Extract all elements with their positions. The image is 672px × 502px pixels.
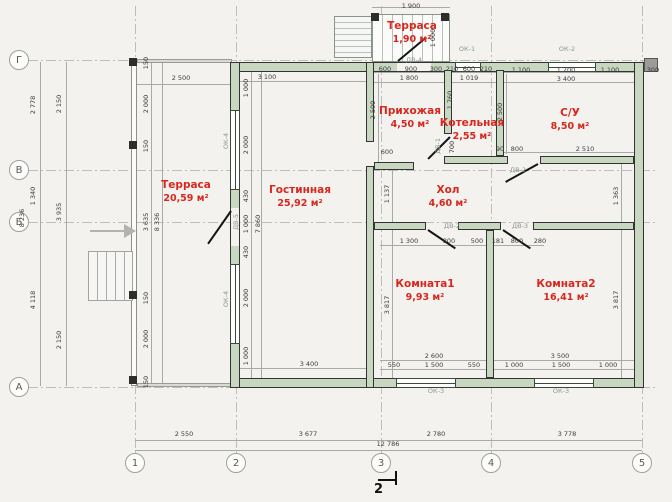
dim-label: 1 760 — [447, 91, 454, 110]
dim-label: 600 — [463, 66, 475, 73]
dim-label: 1 340 — [30, 187, 37, 206]
dim-label: 300 — [647, 67, 659, 74]
room-area: 4,50 м² — [379, 119, 441, 131]
column-post — [371, 13, 379, 21]
door-tag: ДВ-2 — [510, 167, 526, 174]
wall — [444, 156, 508, 164]
dim-label: 2 510 — [576, 146, 595, 153]
dimension-line — [240, 368, 366, 369]
dimension-line — [240, 81, 366, 82]
dim-label: 7 860 — [255, 215, 262, 234]
entry-direction-arrowhead — [124, 224, 136, 238]
dimension-line — [494, 245, 544, 246]
dim-label: 8 236 — [19, 209, 26, 228]
dim-label: 4 118 — [30, 291, 37, 310]
wall — [374, 162, 414, 170]
dim-label: 150 — [143, 57, 150, 69]
section-number: 2 — [374, 482, 383, 497]
dim-label: 3 635 — [143, 213, 150, 232]
dim-label: 3 400 — [300, 361, 319, 368]
room-name: Гостинная — [269, 184, 331, 198]
dim-label: 2 000 — [143, 95, 150, 114]
room-area: 16,41 м² — [536, 292, 595, 304]
dim-label: 3 400 — [557, 76, 576, 83]
dim-label: 1 800 — [400, 75, 419, 82]
axis-bubble-row: В — [9, 160, 29, 180]
dim-label: 12 786 — [377, 441, 400, 448]
room-name: Котельная — [440, 117, 504, 131]
dim-label: 150 — [143, 292, 150, 304]
dim-label: 3 677 — [299, 431, 318, 438]
dim-label: 600 — [379, 66, 391, 73]
room-label: Гостинная25,92 м² — [269, 184, 331, 210]
wall — [366, 166, 374, 388]
dim-label: 430 — [243, 246, 250, 258]
room-label: Котельная2,55 м² — [440, 117, 504, 143]
dim-label: 210 — [480, 66, 492, 73]
room-area: 2,55 м² — [440, 131, 504, 143]
door-tag: ДВ-2 — [444, 223, 460, 230]
room-label: Комната216,41 м² — [536, 278, 595, 304]
room-name: Комната2 — [536, 278, 595, 292]
dim-label: 2 500 — [370, 101, 377, 120]
dim-label: 3 500 — [551, 353, 570, 360]
dimension-line — [380, 245, 486, 246]
dim-label: 550 — [468, 362, 480, 369]
window-tag: ОК-3 — [553, 388, 569, 395]
dim-label: 90 — [496, 146, 504, 153]
dim-label: 300 — [430, 66, 442, 73]
dim-label: 3 817 — [613, 291, 620, 310]
left-terrace-bottom-edge — [137, 383, 232, 387]
room-name: Комната1 — [395, 278, 454, 292]
dimension-line — [40, 62, 41, 386]
door-tag: ДВ-4 — [406, 57, 422, 64]
wall — [634, 62, 644, 388]
window — [230, 110, 240, 190]
entry-stairs — [88, 251, 133, 301]
dim-label: 1 137 — [384, 185, 391, 204]
dimension-line — [133, 84, 232, 85]
floor-plan: 2 ГВБА123451 9001 0006009003001 80021060… — [0, 0, 672, 502]
dimension-line — [494, 369, 634, 370]
dim-label: 600 — [381, 149, 393, 156]
axis-bubble-col: 1 — [125, 453, 145, 473]
dimension-line — [135, 450, 642, 451]
dimension-line — [251, 70, 252, 378]
dim-label: 2 500 — [172, 75, 191, 82]
dim-label: 1 363 — [613, 187, 620, 206]
dim-label: 430 — [243, 190, 250, 202]
dim-label: 1 200 — [557, 67, 576, 74]
dim-label: 800 — [511, 146, 523, 153]
door-tag: ДВ-3 — [512, 223, 528, 230]
dim-label: 3 817 — [384, 296, 391, 315]
room-label: Прихожая4,50 м² — [379, 105, 441, 131]
dim-label: 150 — [143, 376, 150, 388]
axis-line-row — [28, 170, 658, 171]
dimension-line — [392, 166, 393, 378]
dimension-line — [66, 62, 67, 386]
dim-label: 2 000 — [243, 289, 250, 308]
dim-label: 3 935 — [56, 203, 63, 222]
entry-direction-arrow — [90, 230, 126, 232]
dim-label: 150 — [143, 140, 150, 152]
window-tag: ОК-1 — [459, 46, 475, 53]
axis-bubble-row: А — [9, 377, 29, 397]
dim-label: 1 100 — [601, 67, 620, 74]
dim-label: 1 100 — [512, 67, 531, 74]
dim-label: 800 — [443, 238, 455, 245]
column-post — [129, 141, 137, 149]
dimension-line — [444, 82, 504, 83]
room-area: 8,50 м² — [551, 121, 590, 133]
dim-label: 550 — [388, 362, 400, 369]
window — [396, 378, 456, 388]
dim-label: 1 900 — [402, 3, 421, 10]
room-name: Прихожая — [379, 105, 441, 119]
dim-label: 800 — [511, 238, 523, 245]
dim-label: 1 000 — [505, 362, 524, 369]
dim-label: 1 500 — [425, 362, 444, 369]
dim-label: 500 — [471, 238, 483, 245]
dim-label: 2 000 — [243, 136, 250, 155]
dim-label: 900 — [405, 66, 417, 73]
section-flag — [395, 471, 397, 485]
dim-label: 210 — [446, 66, 458, 73]
wall — [374, 222, 426, 230]
section-line — [378, 479, 396, 481]
door-tag: ДВ-5 — [233, 214, 240, 230]
column-post — [441, 13, 449, 21]
dim-label: 181 — [492, 238, 504, 245]
dimension-line — [621, 162, 622, 378]
dim-label: 1 000 — [243, 215, 250, 234]
axis-bubble-col: 2 — [226, 453, 246, 473]
wall — [540, 156, 634, 164]
dim-label: 3 100 — [258, 74, 277, 81]
top-terrace-steps — [334, 16, 372, 58]
window-tag: ОК-2 — [559, 46, 575, 53]
wall — [486, 230, 494, 378]
dim-label: 1 300 — [400, 238, 419, 245]
room-area: 20,59 м² — [161, 193, 211, 205]
room-label: С/У8,50 м² — [551, 107, 590, 133]
axis-bubble-col: 5 — [632, 453, 652, 473]
axis-line-row — [28, 60, 658, 61]
room-area: 4,60 м² — [429, 198, 468, 210]
wall — [458, 222, 501, 230]
dimension-line — [162, 62, 163, 386]
door-swing — [207, 210, 232, 244]
axis-bubble-row: Г — [9, 50, 29, 70]
dim-label: 3 778 — [558, 431, 577, 438]
dimension-line — [380, 369, 486, 370]
dim-label: 1 000 — [599, 362, 618, 369]
dimension-line — [374, 82, 448, 83]
room-name: Терраса — [387, 20, 437, 34]
room-area: 25,92 м² — [269, 198, 331, 210]
room-name: С/У — [551, 107, 590, 121]
room-label: Терраса20,59 м² — [161, 179, 211, 205]
dim-label: 1 000 — [243, 347, 250, 366]
room-area: 9,93 м² — [395, 292, 454, 304]
wall — [533, 222, 634, 230]
dim-label: 2 150 — [56, 331, 63, 350]
room-label: Хол4,60 м² — [429, 184, 468, 210]
dim-label: 1 500 — [552, 362, 571, 369]
dim-label: 8 336 — [154, 213, 161, 232]
room-label: Терраса1,90 м² — [387, 20, 437, 46]
dim-label: 2 550 — [175, 431, 194, 438]
dim-label: 1 000 — [243, 79, 250, 98]
dim-label: 2 780 — [427, 431, 446, 438]
room-area: 1,90 м² — [387, 34, 437, 46]
column-post — [129, 291, 137, 299]
window-tag: ОК-4 — [223, 133, 230, 149]
left-terrace-top-edge — [137, 59, 232, 63]
dim-label: 2 000 — [143, 330, 150, 349]
room-label: Комната19,93 м² — [395, 278, 454, 304]
room-name: Терраса — [161, 179, 211, 193]
dim-label: 2 600 — [425, 353, 444, 360]
window-tag: ОК-3 — [428, 388, 444, 395]
room-name: Хол — [429, 184, 468, 198]
column-post — [129, 58, 137, 66]
dim-label: 1 019 — [460, 75, 479, 82]
dim-label: 280 — [534, 238, 546, 245]
axis-bubble-col: 3 — [371, 453, 391, 473]
dimension-line — [506, 74, 507, 154]
column-post — [129, 376, 137, 384]
dim-label: 2 150 — [56, 95, 63, 114]
dim-label: 2 778 — [30, 96, 37, 115]
axis-bubble-col: 4 — [481, 453, 501, 473]
window — [230, 264, 240, 344]
window-tag: ОК-4 — [223, 291, 230, 307]
